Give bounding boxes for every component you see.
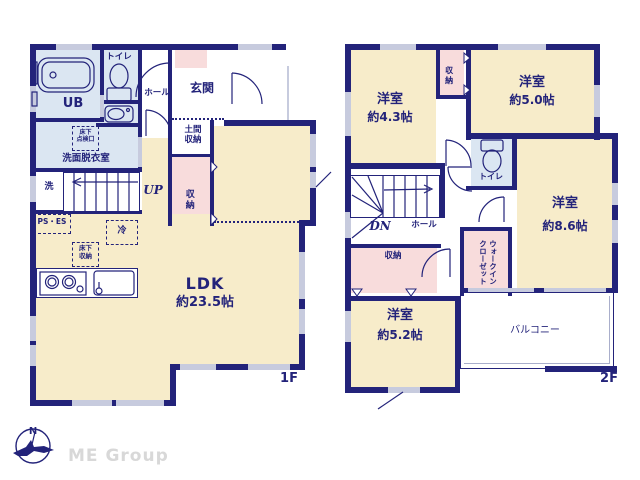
floorplan-page: N UB トイレ ホール 玄関 土間 収納 収納 洗面脱衣室 床下 点検口 洗 … — [0, 0, 640, 480]
underfloor-access-label: 床下 点検口 — [72, 129, 99, 143]
closet-door-mark — [211, 213, 217, 225]
brand-logo-text: ME Group — [68, 446, 169, 466]
front-door-arc — [232, 73, 262, 104]
room-bedroom-d-size: 約5.2帖 — [366, 328, 434, 342]
underfloor-storage-label: 床下 収納 — [72, 245, 99, 261]
laundry-label: 洗 — [35, 182, 63, 193]
stairs-1f-treads — [73, 172, 138, 212]
room-bedroom-a-label: 洋室 — [358, 92, 422, 108]
room-bedroom-d-label: 洋室 — [368, 308, 432, 324]
room-closet1f-label: 収納 — [183, 178, 194, 222]
closet-door-mark — [464, 53, 470, 63]
room-wic-label: ウォークイン クローゼット — [468, 233, 508, 291]
room-bedroom-b-size: 約5.0帖 — [498, 93, 566, 107]
room-bath-label: UB — [50, 96, 96, 112]
closet-door-mark — [406, 289, 416, 296]
room-entrance-label: 玄関 — [180, 81, 224, 95]
door-arc — [479, 197, 504, 222]
room-entrance-storage-label: 土間 収納 — [176, 125, 210, 145]
washbasin-icon — [105, 106, 133, 122]
door-arc — [448, 167, 472, 191]
plan-linework: N — [0, 0, 640, 480]
closet-door-mark — [352, 289, 362, 296]
room-bedroom-c-label: 洋室 — [533, 196, 597, 212]
room-closet-b-label: 収納 — [374, 251, 412, 261]
door-swing-mark — [316, 172, 331, 187]
door-arc — [422, 249, 450, 277]
room-hall1-label: ホール — [139, 88, 175, 98]
stairs-up-label: UP — [136, 183, 170, 197]
room-toilet1-label: トイレ — [100, 52, 138, 62]
room-toilet2-label: トイレ — [470, 172, 512, 182]
ps-es-label: PS・ES — [33, 217, 71, 226]
closet-door-mark — [211, 161, 217, 173]
toilet-icon — [107, 64, 131, 101]
floor2-label: 2F — [592, 371, 626, 387]
room-ldk-label: LDK — [165, 274, 245, 293]
room-hall2-label: ホール — [404, 220, 444, 230]
wic-label-line2: クローゼット — [479, 233, 488, 291]
door-swing-mark — [378, 392, 403, 409]
room-bedroom-b-label: 洋室 — [500, 75, 564, 91]
door-arc — [446, 140, 471, 166]
room-washroom-label: 洗面脱衣室 — [46, 153, 126, 164]
room-bedroom-c-size: 約8.6帖 — [531, 219, 599, 233]
refrigerator-label: 冷 — [106, 226, 138, 237]
door-arc — [146, 110, 171, 136]
room-bedroom-a-size: 約4.3帖 — [356, 110, 424, 124]
balcony-label: バルコニー — [500, 325, 570, 337]
room-closet-a-label: 収納 — [444, 56, 454, 96]
stairs-down-label: DN — [366, 219, 394, 233]
wic-label-line1: ウォークイン — [489, 233, 498, 291]
floor1-label: 1F — [272, 371, 306, 387]
compass-north-label: N — [29, 426, 37, 437]
compass-icon: N — [13, 426, 54, 463]
sink-icon — [94, 271, 134, 295]
toilet-icon — [481, 140, 503, 172]
closet-door-mark — [464, 85, 470, 95]
room-ldk-size: 約23.5帖 — [160, 295, 250, 311]
stove-icon — [40, 272, 86, 295]
